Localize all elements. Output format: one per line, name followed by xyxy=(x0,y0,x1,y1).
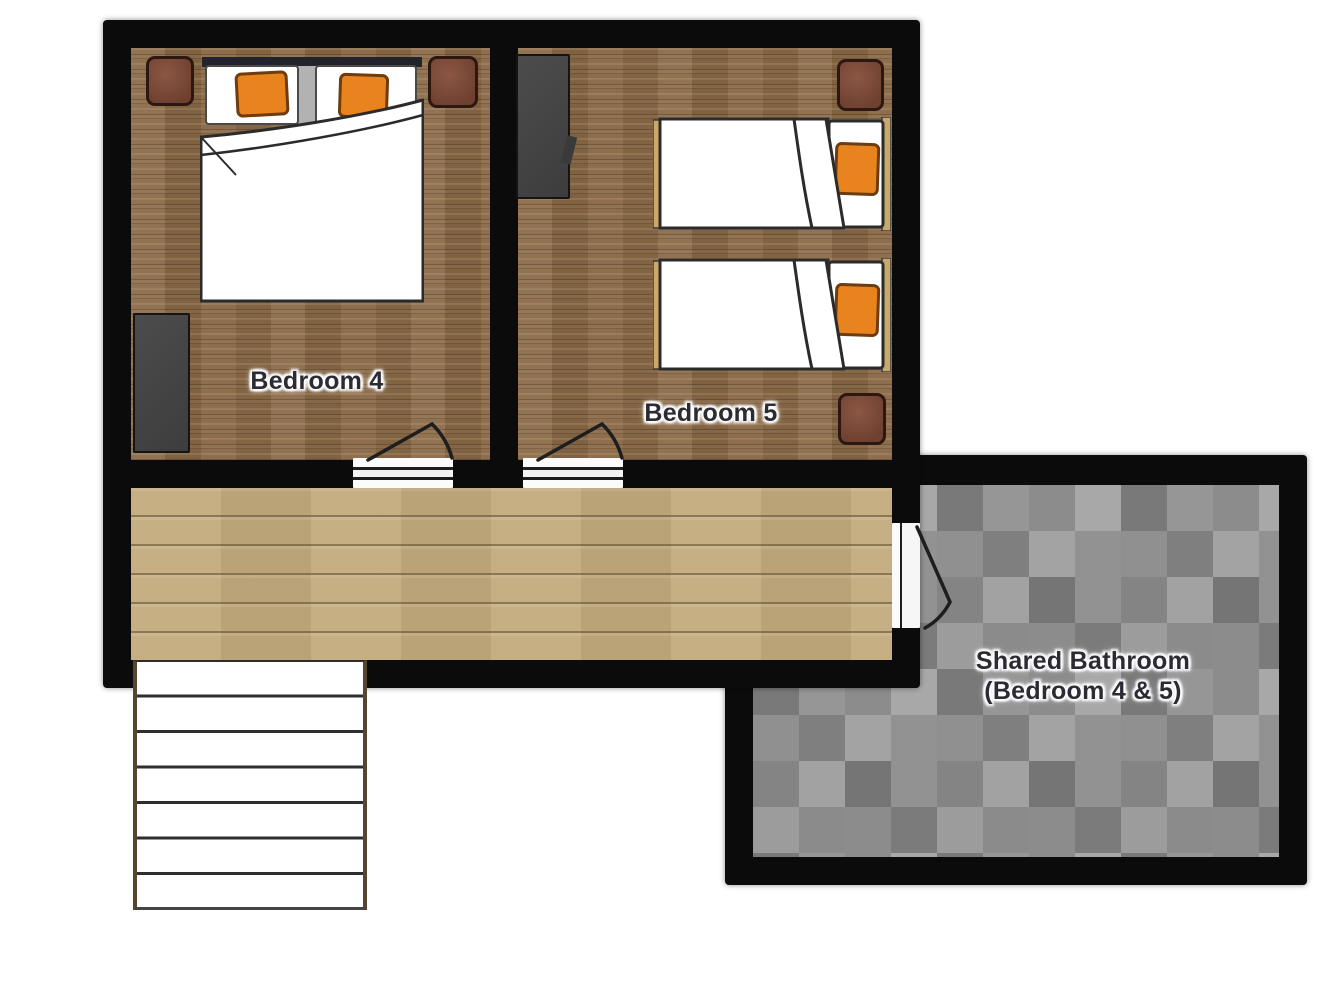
floor-plan: Bedroom 4 Bedroom 5 Shared Bathroom (Bed… xyxy=(0,0,1333,1000)
bedroom4-label: Bedroom 4 xyxy=(197,366,437,396)
bathroom-label-line1: Shared Bathroom xyxy=(923,646,1243,676)
door-swing-arcs xyxy=(0,0,1333,1000)
bathroom-label-line2: (Bedroom 4 & 5) xyxy=(923,676,1243,706)
bathroom-label: Shared Bathroom (Bedroom 4 & 5) xyxy=(923,646,1243,706)
bedroom5-label: Bedroom 5 xyxy=(591,398,831,428)
